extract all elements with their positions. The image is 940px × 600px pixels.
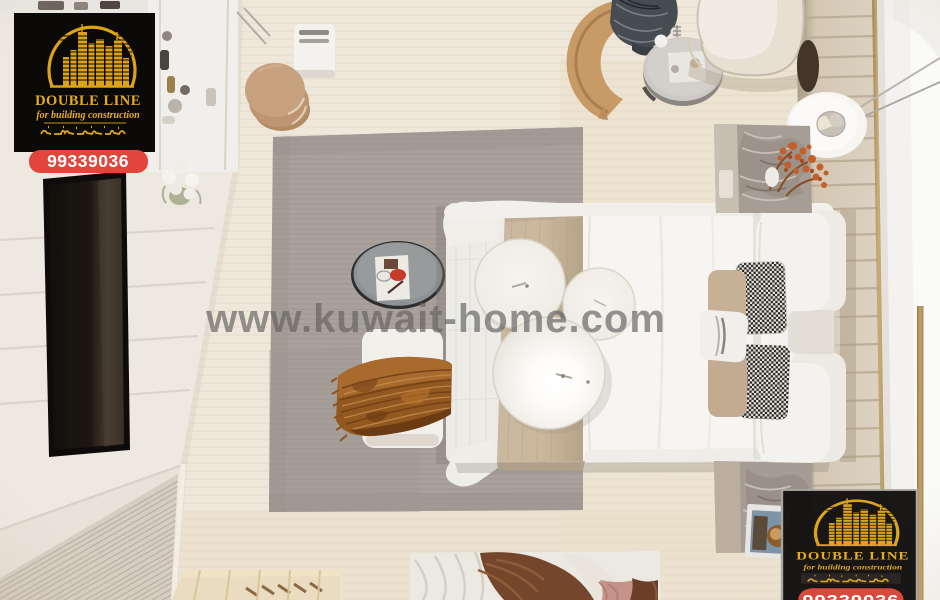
svg-text:99339036: 99339036 [47,151,129,171]
svg-text:www.kuwait-home.com: www.kuwait-home.com [205,297,666,341]
svg-text:99339036: 99339036 [802,592,899,600]
svg-text:DOUBLE LINE: DOUBLE LINE [796,549,909,562]
svg-text:for building construction: for building construction [36,110,140,121]
svg-text:DOUBLE LINE: DOUBLE LINE [35,93,141,109]
svg-text:for building construction: for building construction [803,563,902,572]
